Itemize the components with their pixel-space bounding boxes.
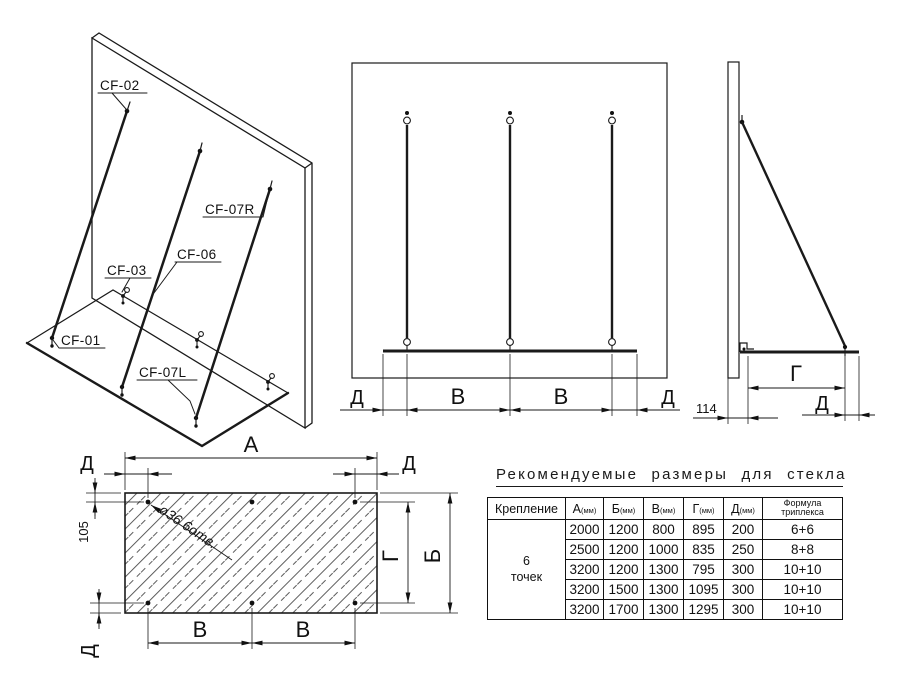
side-cable <box>742 122 845 346</box>
side-dimension-lines <box>693 388 875 418</box>
label-cf-02: CF-02 <box>100 78 140 93</box>
label-cf-07r: CF-07R <box>205 202 255 217</box>
front-extension-lines <box>383 354 637 416</box>
label-cf-06: CF-06 <box>177 247 217 262</box>
plan-dim-g: Г <box>378 550 403 562</box>
isometric-view: CF-02 CF-07R CF-06 CF-03 CF-01 CF-07L <box>27 33 312 446</box>
col-header-g: Г(мм) <box>684 498 724 520</box>
plan-dim-b: Б <box>420 549 445 563</box>
front-dim-v-right: В <box>554 384 569 409</box>
table-row: 6точек 2000 1200 800 895 200 6+6 <box>488 520 843 540</box>
col-header-b: Б(мм) <box>604 498 644 520</box>
plan-view: ø36 6отв. <box>76 432 458 658</box>
side-dim-114: 114 <box>696 401 717 416</box>
col-header-v: В(мм) <box>644 498 684 520</box>
technical-drawing-page: { "drawing": { "labels": { "cf01": "CF-0… <box>0 0 900 700</box>
side-wall <box>728 62 739 378</box>
col-header-d: Д(мм) <box>724 498 763 520</box>
front-dim-d-right: Д <box>661 387 675 409</box>
front-dim-d-left: Д <box>350 387 364 409</box>
side-dim-g: Г <box>790 361 802 386</box>
plan-dim-d-topright: Д <box>402 453 416 475</box>
col-header-a: А(мм) <box>566 498 604 520</box>
front-view: Д В В Д <box>340 63 680 416</box>
col-header-mount: Крепление <box>488 498 566 520</box>
side-view: Г Д 114 <box>693 62 875 424</box>
front-rods <box>407 125 612 338</box>
recommended-sizes-table: Крепление А(мм) Б(мм) В(мм) Г(мм) Д(мм) … <box>487 497 843 620</box>
plan-dim-v-left: В <box>193 617 208 642</box>
label-cf-07l: CF-07L <box>139 365 187 380</box>
iso-wall-anchors <box>125 109 273 192</box>
plan-dim-a: А <box>244 432 259 457</box>
plan-dim-d-topleft: Д <box>80 453 94 475</box>
side-dim-d: Д <box>815 393 829 415</box>
col-header-formula: Формулатриплекса <box>763 498 843 520</box>
iso-wall-anchor-pins <box>127 102 272 189</box>
plan-dim-v-right: В <box>296 617 311 642</box>
label-cf-03: CF-03 <box>107 263 147 278</box>
plan-dim-105: 105 <box>76 521 91 543</box>
front-dim-v-left: В <box>451 384 466 409</box>
mount-type-cell: 6точек <box>488 520 566 620</box>
label-cf-01: CF-01 <box>61 333 101 348</box>
table-title: Рекомендуемые размеры для стекла <box>496 466 843 487</box>
table-header-row: Крепление А(мм) Б(мм) В(мм) Г(мм) Д(мм) … <box>488 498 843 520</box>
plan-dim-d-bottomleft: Д <box>78 644 100 658</box>
